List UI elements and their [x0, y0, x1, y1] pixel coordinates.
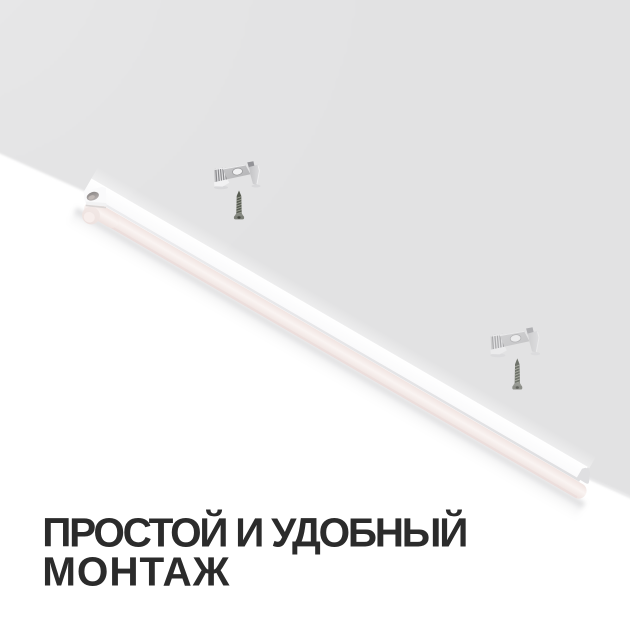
svg-text:МОНТАЖ: МОНТАЖ	[42, 549, 229, 595]
